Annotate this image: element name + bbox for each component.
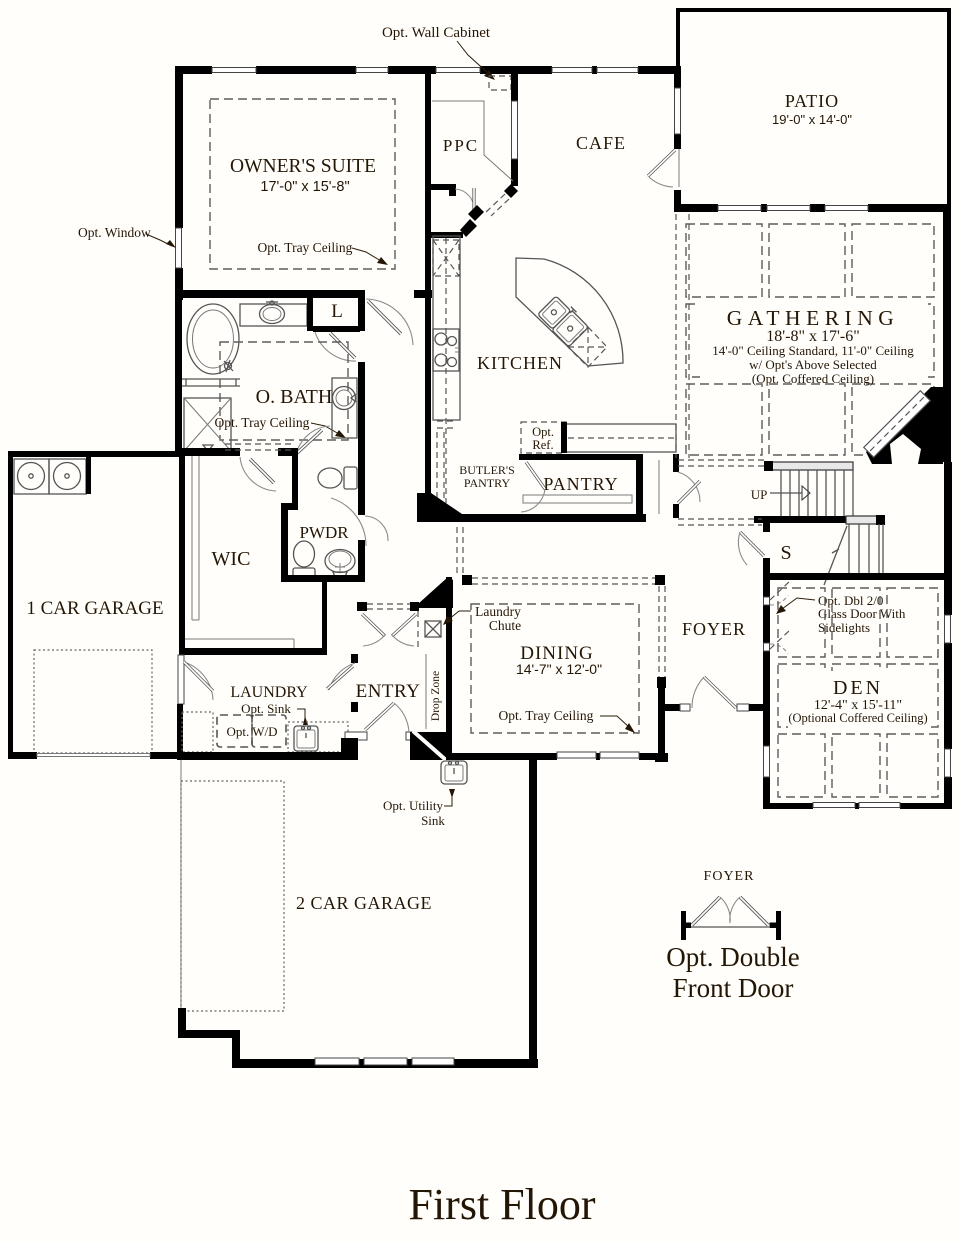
svg-text:1 CAR GARAGE: 1 CAR GARAGE: [26, 598, 163, 619]
svg-text:Opt. Tray Ceiling: Opt. Tray Ceiling: [215, 415, 310, 430]
svg-text:PANTRY: PANTRY: [464, 476, 511, 490]
svg-text:S: S: [780, 542, 791, 564]
svg-text:Opt. Double: Opt. Double: [666, 942, 800, 972]
svg-text:BUTLER'S: BUTLER'S: [459, 463, 515, 477]
svg-text:UP: UP: [751, 487, 768, 502]
svg-text:FOYER: FOYER: [704, 869, 755, 884]
svg-text:OWNER'S SUITE: OWNER'S SUITE: [230, 156, 376, 177]
svg-text:CAFE: CAFE: [576, 133, 626, 153]
svg-text:ENTRY: ENTRY: [356, 681, 421, 702]
svg-text:17'-0" x 15'-8": 17'-0" x 15'-8": [260, 179, 349, 195]
svg-text:PANTRY: PANTRY: [543, 474, 618, 494]
svg-text:Opt. Tray Ceiling: Opt. Tray Ceiling: [258, 240, 353, 255]
svg-text:Opt. Utility: Opt. Utility: [383, 798, 443, 813]
svg-text:(Optional Coffered Ceiling): (Optional Coffered Ceiling): [788, 711, 927, 725]
svg-text:L: L: [331, 301, 343, 322]
svg-text:Opt. Wall Cabinet: Opt. Wall Cabinet: [382, 25, 491, 41]
svg-text:2 CAR GARAGE: 2 CAR GARAGE: [296, 893, 432, 913]
svg-text:Glass Door With: Glass Door With: [818, 606, 906, 621]
svg-text:(Opt. Coffered Ceiling): (Opt. Coffered Ceiling): [752, 371, 874, 386]
svg-text:O. BATH: O. BATH: [256, 386, 333, 408]
svg-text:Ref.: Ref.: [532, 438, 553, 452]
svg-text:FOYER: FOYER: [682, 619, 746, 639]
svg-text:Opt. Sink: Opt. Sink: [241, 701, 291, 716]
svg-text:14'-7" x 12'-0": 14'-7" x 12'-0": [516, 661, 602, 677]
svg-text:Chute: Chute: [489, 618, 521, 633]
svg-text:PPC: PPC: [443, 136, 479, 155]
svg-text:Laundry: Laundry: [475, 604, 521, 619]
svg-text:Opt.: Opt.: [532, 425, 554, 439]
svg-text:19'-0" x 14'-0": 19'-0" x 14'-0": [772, 112, 852, 127]
svg-text:Drop Zone: Drop Zone: [430, 671, 442, 721]
svg-text:DEN: DEN: [833, 677, 883, 699]
svg-text:Front Door: Front Door: [673, 973, 794, 1003]
svg-text:14'-0" Ceiling Standard, 11'-0: 14'-0" Ceiling Standard, 11'-0" Ceiling: [712, 343, 914, 358]
svg-text:LAUNDRY: LAUNDRY: [230, 684, 308, 701]
svg-text:PATIO: PATIO: [785, 91, 839, 111]
svg-text:Opt. Window: Opt. Window: [78, 225, 151, 240]
svg-text:Opt. Tray Ceiling: Opt. Tray Ceiling: [499, 708, 594, 723]
svg-text:PWDR: PWDR: [299, 523, 349, 542]
svg-text:GATHERING: GATHERING: [727, 306, 900, 330]
svg-text:Sink: Sink: [421, 813, 445, 828]
svg-text:First Floor: First Floor: [408, 1180, 595, 1229]
svg-text:KITCHEN: KITCHEN: [477, 353, 563, 373]
svg-text:WIC: WIC: [212, 548, 251, 570]
svg-text:w/ Opt's Above Selected: w/ Opt's Above Selected: [749, 357, 877, 372]
svg-text:Sidelights: Sidelights: [818, 620, 870, 635]
